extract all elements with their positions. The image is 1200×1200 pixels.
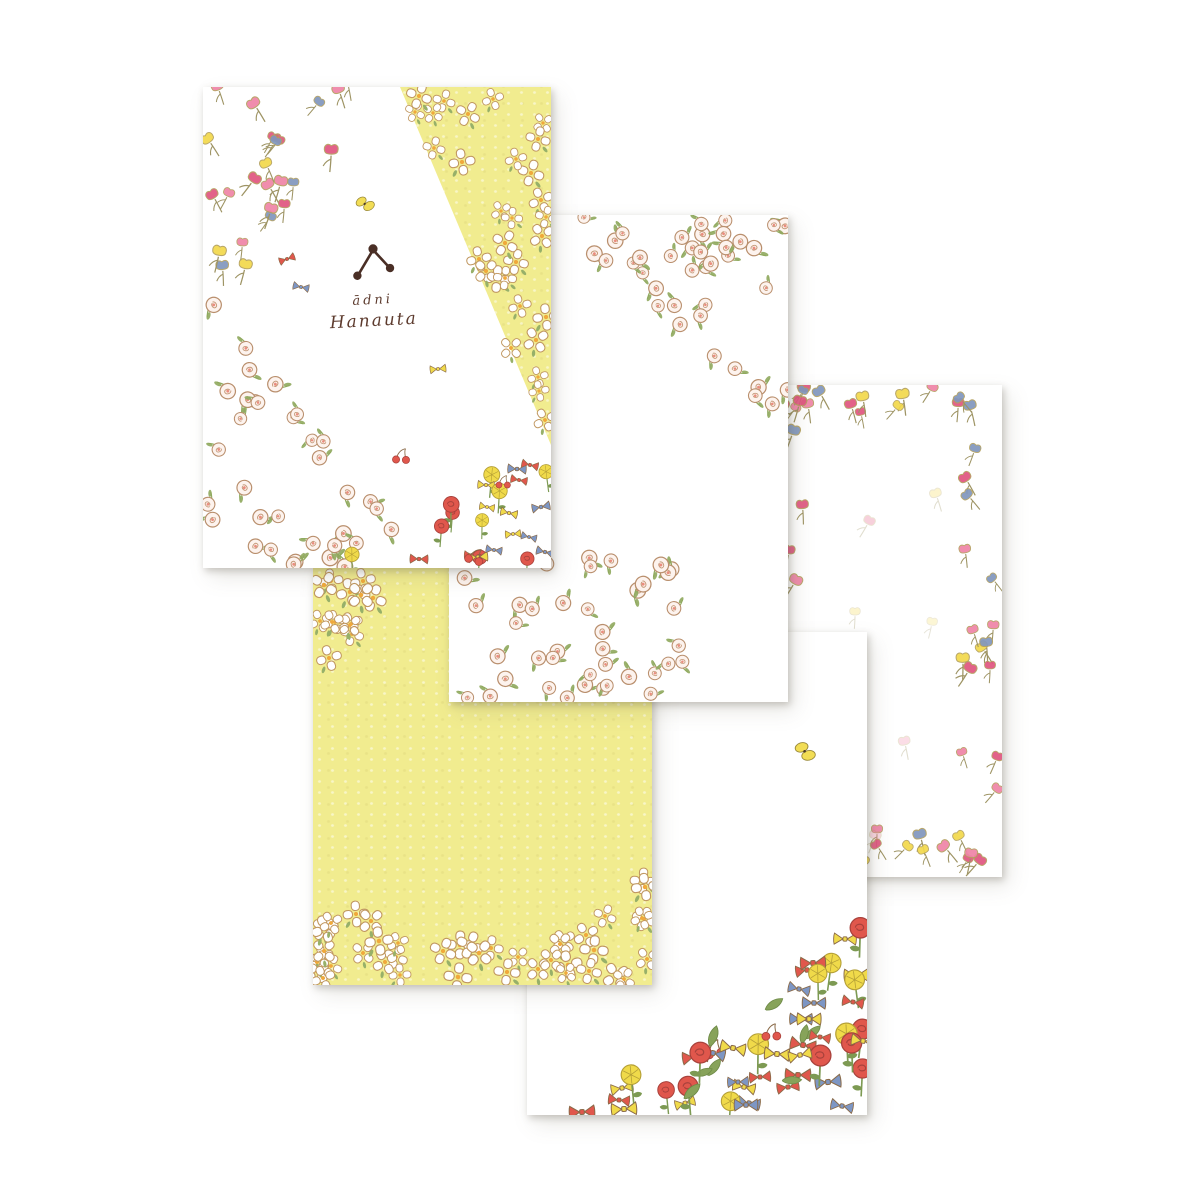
white-flower-icon	[379, 940, 413, 974]
rose-icon	[544, 635, 576, 667]
dandelion-icon	[813, 949, 848, 997]
tulip-icon	[968, 634, 1002, 672]
white-flower-icon	[545, 922, 582, 959]
tulip-icon	[790, 496, 815, 527]
rose-icon	[622, 253, 646, 277]
rose-icon	[329, 549, 360, 568]
bow-icon	[841, 993, 866, 1011]
rose-icon	[627, 246, 655, 274]
tulip-icon	[980, 746, 1002, 779]
white-flower-icon	[344, 934, 381, 971]
bow-icon	[794, 961, 821, 980]
rose-icon	[329, 477, 365, 513]
white-flower-icon	[313, 641, 346, 676]
tulip-icon	[203, 182, 233, 219]
bow-icon	[476, 479, 495, 491]
white-flower-icon	[519, 950, 558, 985]
tulip-icon	[980, 659, 1001, 685]
tulip-icon	[325, 87, 358, 114]
bow-icon	[277, 251, 297, 267]
white-flower-icon	[606, 961, 641, 985]
rose-icon	[491, 665, 523, 697]
cherry-icon	[493, 472, 512, 490]
rose-icon	[452, 682, 479, 702]
leaf-icon	[802, 1023, 823, 1040]
bow-icon	[534, 544, 551, 559]
tulip-icon	[950, 650, 976, 682]
leaf-icon	[791, 1022, 817, 1047]
tulip-icon	[919, 614, 943, 642]
rose-icon	[702, 215, 739, 251]
tulip-icon	[850, 404, 875, 433]
white-flower-icon	[501, 940, 535, 974]
rose-icon	[714, 241, 745, 272]
tulip-icon	[850, 509, 883, 544]
tulip-icon	[258, 127, 292, 162]
bow-icon	[735, 1093, 762, 1111]
white-flower-icon	[588, 899, 621, 932]
rose-icon	[231, 332, 259, 360]
rose-icon	[203, 433, 232, 463]
rose-icon	[539, 642, 572, 675]
rose-icon	[258, 366, 296, 404]
rose-icon	[590, 248, 618, 276]
white-flower-icon	[313, 910, 343, 948]
tulip-icon	[231, 165, 270, 206]
tulip-icon	[282, 175, 304, 202]
rose-icon	[308, 424, 338, 454]
white-flower-icon	[332, 574, 369, 611]
tulip-icon	[255, 126, 285, 159]
bow-icon	[499, 506, 520, 521]
tulip-icon	[923, 483, 953, 517]
tulip-icon	[950, 743, 977, 773]
rose-icon	[637, 678, 669, 702]
tulip-icon	[951, 464, 987, 502]
white-flower-icon	[313, 932, 343, 971]
tulip-icon	[947, 655, 985, 695]
white-flower-icon	[549, 956, 582, 985]
white-flower-icon	[319, 606, 351, 638]
bow-icon	[484, 543, 503, 556]
bow-icon	[429, 363, 448, 375]
bow-icon	[727, 1074, 751, 1088]
white-flower-icon	[626, 902, 652, 934]
tulip-icon	[886, 834, 920, 868]
bow-icon	[829, 1097, 856, 1115]
tulip-icon	[974, 633, 1001, 666]
white-flower-icon	[628, 941, 652, 977]
leaf-icon	[693, 1063, 714, 1081]
tulip-icon	[845, 605, 865, 630]
bow-icon	[748, 1069, 772, 1084]
leaf-icon	[702, 1056, 727, 1078]
tulip-icon	[892, 732, 920, 764]
red-flower-icon	[804, 1043, 837, 1093]
white-flower-icon	[341, 898, 371, 928]
bow-icon	[467, 550, 490, 565]
rose-icon	[754, 389, 788, 423]
tulip-icon	[946, 825, 978, 860]
rose-icon	[688, 289, 719, 320]
rose-icon	[639, 655, 670, 686]
bow-icon	[762, 1045, 791, 1064]
red-flower-icon	[467, 548, 491, 568]
bow-icon	[520, 457, 540, 472]
tulip-icon	[849, 386, 878, 421]
tulip-icon	[888, 385, 919, 420]
rose-icon	[575, 662, 602, 689]
tulip-icon	[239, 90, 278, 131]
rose-icon	[643, 294, 673, 324]
rose-icon	[203, 289, 230, 325]
tulip-icon	[255, 129, 289, 165]
white-flower-icon	[549, 946, 587, 984]
rose-icon	[283, 546, 314, 568]
tulip-icon	[905, 823, 938, 861]
tulip-icon	[960, 620, 989, 652]
leaf-icon	[699, 1022, 727, 1049]
rose-icon	[225, 472, 261, 508]
rose-icon	[356, 485, 391, 520]
rose-icon	[210, 373, 243, 406]
tulip-icon	[253, 171, 290, 210]
rose-icon	[576, 599, 601, 624]
butterfly-icon	[353, 193, 379, 216]
white-flower-icon	[315, 949, 348, 982]
white-flower-icon	[313, 961, 341, 985]
white-flower-icon	[491, 956, 523, 985]
bow-icon	[796, 1011, 823, 1027]
tulip-icon	[946, 385, 981, 421]
rose-icon	[294, 525, 328, 559]
rose-icon	[502, 608, 533, 639]
tulip-icon	[954, 481, 990, 517]
rose-icon	[571, 215, 601, 233]
rose-icon	[650, 550, 689, 589]
tulip-icon	[804, 385, 841, 417]
white-flower-icon	[313, 605, 337, 638]
dandelion-icon	[472, 512, 492, 543]
bow-icon	[798, 954, 827, 972]
rose-icon	[547, 584, 581, 618]
white-flower-icon	[382, 927, 414, 959]
bow-icon	[609, 1099, 638, 1115]
tulip-icon	[878, 395, 910, 428]
rose-icon	[641, 549, 677, 585]
rose-icon	[203, 500, 228, 537]
bow-icon	[509, 473, 529, 487]
white-flower-icon	[351, 901, 392, 942]
tulip-icon	[951, 849, 980, 877]
white-flower-icon	[532, 940, 570, 978]
rose-icon	[518, 592, 549, 623]
rose-icon	[610, 655, 647, 692]
tulip-icon	[953, 540, 979, 571]
rose-icon	[575, 544, 607, 576]
rose-icon	[687, 215, 713, 236]
rose-icon	[658, 287, 689, 318]
rose-icon	[281, 405, 309, 433]
white-flower-icon	[313, 941, 337, 971]
rose-icon	[476, 681, 502, 702]
dandelion-icon	[486, 480, 511, 517]
rose-icon	[327, 520, 357, 550]
red-flower-icon	[429, 516, 452, 551]
white-flower-icon	[567, 916, 605, 954]
bow-icon	[680, 1047, 710, 1067]
bow-icon	[801, 995, 827, 1011]
red-flower-icon	[844, 1015, 867, 1065]
tulip-icon	[956, 394, 988, 431]
white-flower-icon	[361, 923, 396, 958]
rose-icon	[654, 555, 684, 585]
rose-icon	[255, 536, 286, 567]
rose-icon	[316, 530, 351, 565]
leaf-icon	[762, 995, 785, 1013]
rose-icon	[630, 262, 657, 289]
white-flower-icon	[450, 926, 489, 965]
leaf-icon	[779, 1068, 805, 1092]
dandelion-icon	[615, 1061, 649, 1109]
bow-icon	[606, 1092, 631, 1109]
tulip-icon	[262, 171, 294, 208]
rose-icon	[663, 311, 693, 341]
white-flower-icon	[573, 954, 606, 985]
tulip-icon	[946, 396, 969, 425]
tulip-icon	[959, 439, 988, 471]
bow-icon	[568, 1102, 597, 1115]
tulip-icon	[252, 198, 284, 235]
tulip-icon	[299, 90, 332, 124]
bow-icon	[813, 1072, 843, 1092]
rose-icon	[751, 271, 782, 302]
rose-icon	[240, 529, 276, 565]
cherry-icon	[699, 1034, 729, 1062]
bow-icon	[673, 1094, 698, 1112]
rose-icon	[239, 385, 271, 417]
rose-icon	[656, 238, 688, 270]
white-flower-icon	[316, 567, 346, 596]
bow-icon	[733, 1097, 759, 1112]
red-flower-icon	[685, 1040, 717, 1089]
tulip-icon	[955, 844, 983, 877]
rose-icon	[671, 222, 699, 250]
white-flower-icon	[313, 910, 344, 948]
red-flower-icon	[844, 915, 867, 963]
bow-icon	[530, 499, 551, 514]
tulip-icon	[863, 833, 896, 867]
tulip-icon	[976, 777, 1002, 812]
letter-paper-main: ādni Hanauta	[203, 87, 551, 568]
dandelion-icon	[341, 545, 363, 568]
white-flower-icon	[332, 608, 367, 643]
white-flower-icon	[595, 955, 637, 985]
rose-icon	[282, 396, 312, 426]
white-flower-icon	[457, 932, 500, 975]
white-flower-icon	[353, 578, 392, 617]
tulip-icon	[795, 394, 823, 427]
rose-icon	[587, 632, 622, 667]
tulip-icon	[955, 846, 994, 877]
bow-icon	[789, 1011, 814, 1026]
tulip-icon	[982, 618, 1002, 646]
rose-icon	[764, 215, 788, 239]
white-flower-icon	[628, 866, 652, 896]
bow-icon	[409, 553, 429, 566]
bow-icon	[506, 463, 527, 476]
rose-icon	[580, 240, 612, 272]
dandelion-icon	[804, 962, 833, 1005]
tulip-icon	[785, 385, 815, 412]
dandelion-icon	[478, 464, 506, 503]
rose-icon	[575, 554, 604, 583]
tulip-icon	[930, 832, 969, 872]
white-flower-icon	[314, 906, 349, 941]
bow-icon	[808, 1028, 833, 1045]
bow-icon	[504, 528, 522, 539]
tulip-icon	[914, 385, 946, 410]
rose-icon	[684, 219, 721, 256]
bow-icon	[788, 1034, 819, 1056]
white-flower-icon	[387, 962, 413, 985]
rose-icon	[675, 251, 709, 285]
white-flower-icon	[424, 932, 462, 970]
rose-icon	[584, 671, 617, 702]
rose-icon	[662, 594, 689, 621]
tulip-icon	[203, 126, 231, 165]
tulip-icon	[335, 87, 363, 106]
bow-icon	[698, 1042, 728, 1064]
tulip-icon	[837, 394, 868, 429]
tulip-icon	[203, 240, 234, 276]
rose-icon	[617, 573, 656, 612]
white-flower-icon	[315, 605, 349, 639]
rose-icon	[739, 233, 774, 268]
bow-icon	[520, 530, 539, 544]
rose-icon	[707, 229, 742, 264]
dandelion-icon	[838, 965, 867, 1014]
tulip-icon	[253, 152, 286, 188]
rose-icon	[553, 680, 585, 702]
white-flower-icon	[441, 960, 475, 985]
tulip-icon	[910, 840, 940, 873]
tulip-icon	[980, 567, 1002, 599]
rose-icon	[308, 443, 337, 472]
rose-icon	[283, 549, 310, 568]
rose-icon	[362, 496, 392, 526]
stationery-set-photo: ādni Hanauta	[0, 0, 1200, 1200]
rose-icon	[263, 504, 289, 530]
tulip-icon	[209, 257, 235, 289]
brand-logo: ādni Hanauta	[305, 240, 439, 335]
sprig-icon	[346, 242, 396, 288]
leaf-icon	[680, 1081, 705, 1101]
dandelion-icon	[714, 1088, 745, 1115]
white-flower-icon	[541, 925, 579, 963]
red-flower-icon	[847, 1057, 867, 1103]
rose-icon	[624, 569, 658, 603]
rose-icon	[590, 616, 619, 645]
rose-icon	[593, 648, 624, 679]
rose-icon	[638, 274, 669, 305]
rose-icon	[669, 651, 696, 678]
rose-icon	[596, 218, 635, 257]
white-flower-icon	[577, 933, 611, 967]
tulip-icon	[787, 385, 818, 414]
tulip-icon	[866, 823, 887, 850]
tulip-icon	[204, 87, 235, 111]
rose-icon	[298, 429, 322, 453]
rose-icon	[742, 384, 770, 412]
red-flower-icon	[673, 1073, 706, 1115]
rose-icon	[341, 527, 368, 554]
white-flower-icon	[628, 870, 652, 903]
brand-name-line2: Hanauta	[308, 308, 439, 335]
rose-icon	[521, 644, 554, 677]
rose-icon	[486, 641, 513, 668]
cherry-icon	[758, 1020, 783, 1043]
dandelion-icon	[830, 1019, 865, 1070]
tulip-icon	[230, 236, 252, 264]
bow-icon	[718, 1037, 748, 1058]
rose-icon	[463, 589, 493, 619]
rose-icon	[720, 353, 753, 386]
rose-icon	[500, 589, 536, 625]
rose-icon	[316, 540, 350, 568]
red-flower-icon	[439, 495, 463, 532]
rose-icon	[690, 238, 716, 264]
white-flower-icon	[333, 606, 368, 641]
tulip-icon	[273, 197, 296, 226]
rose-icon	[244, 499, 282, 537]
white-flower-icon	[339, 573, 383, 617]
bow-icon	[775, 1078, 801, 1096]
red-flower-icon	[441, 504, 463, 537]
dandelion-icon	[534, 461, 551, 496]
red-flower-icon	[653, 1078, 681, 1115]
rose-icon	[765, 215, 788, 242]
butterfly-icon	[792, 739, 821, 764]
white-flower-icon	[627, 902, 652, 936]
cherry-icon	[461, 541, 489, 568]
rose-icon	[608, 217, 637, 246]
rose-icon	[651, 649, 681, 679]
tulip-icon	[251, 205, 283, 239]
bow-icon	[842, 967, 867, 983]
rose-icon	[228, 402, 257, 431]
rose-icon	[677, 236, 702, 261]
red-flower-icon	[517, 550, 538, 568]
white-flower-icon	[366, 944, 403, 981]
bow-icon	[849, 1032, 867, 1051]
white-flower-icon	[444, 929, 475, 960]
white-flower-icon	[313, 950, 338, 985]
bow-icon	[786, 979, 812, 998]
rose-icon	[593, 546, 627, 580]
rose-icon	[203, 485, 226, 520]
dandelion-icon	[742, 1031, 774, 1080]
rose-icon	[532, 674, 564, 702]
rose-icon	[237, 385, 269, 417]
red-flower-icon	[837, 1030, 867, 1078]
bow-icon	[786, 1045, 814, 1065]
rose-icon	[768, 374, 788, 409]
bow-icon	[463, 549, 481, 560]
rose-icon	[592, 673, 619, 700]
rose-icon	[696, 341, 730, 375]
white-flower-icon	[313, 567, 345, 606]
